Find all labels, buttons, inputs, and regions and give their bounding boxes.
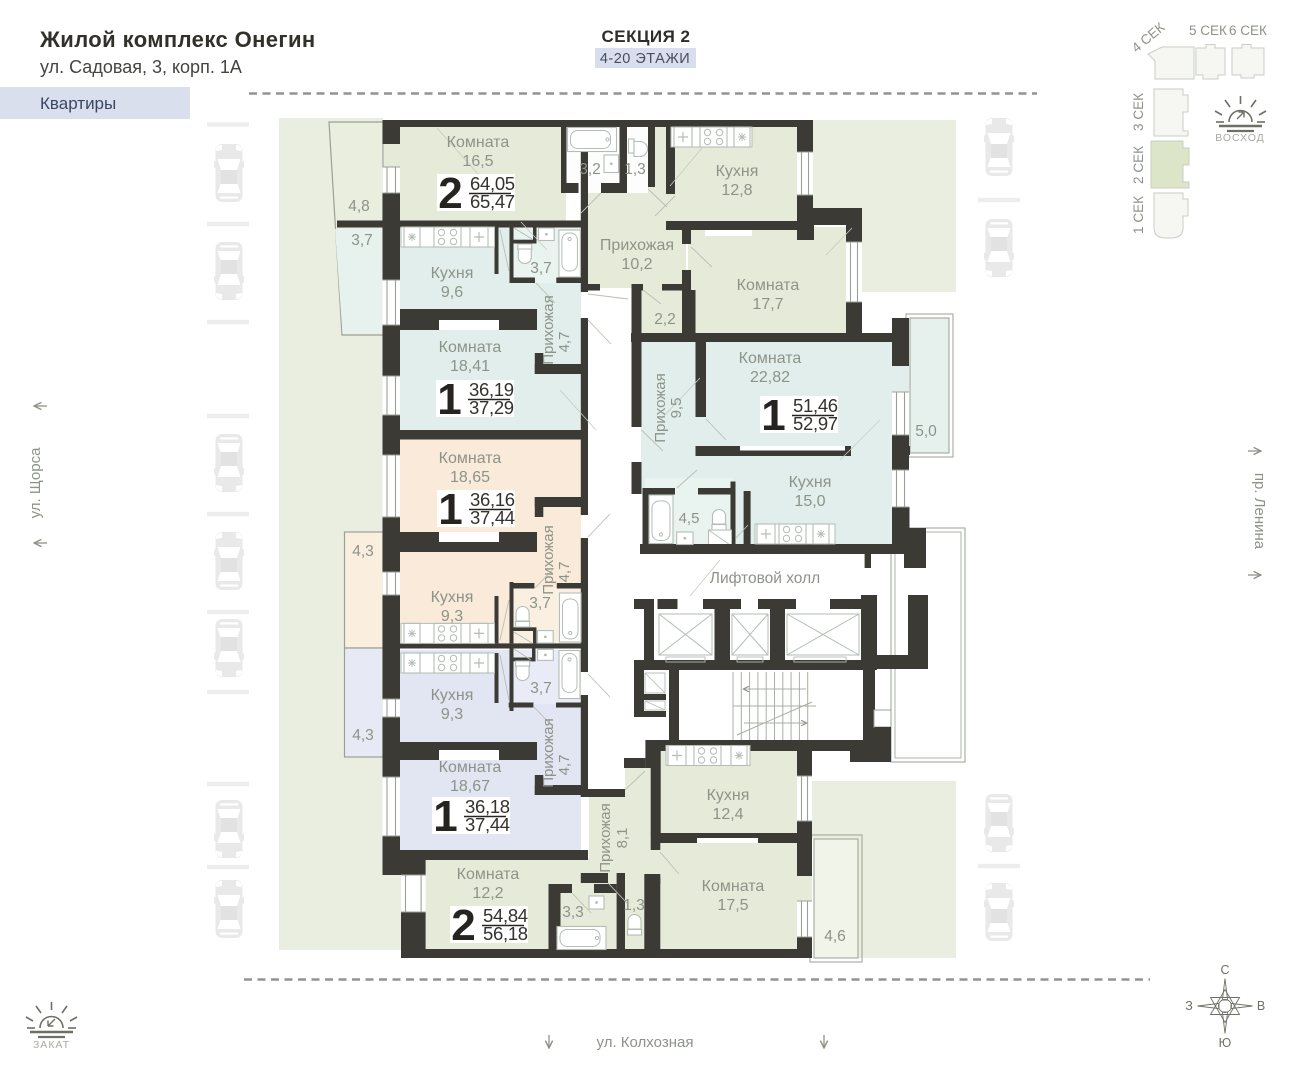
svg-text:9,6: 9,6 (441, 284, 463, 301)
svg-text:16,5: 16,5 (462, 153, 493, 170)
svg-text:Кухня: Кухня (716, 163, 759, 180)
svg-text:5 СЕК: 5 СЕК (1189, 23, 1227, 38)
svg-text:2 СЕК: 2 СЕК (1131, 146, 1146, 184)
svg-text:ул. Садовая, 3, корп. 1А: ул. Садовая, 3, корп. 1А (40, 57, 242, 77)
svg-text:2: 2 (451, 901, 475, 950)
svg-text:9,3: 9,3 (441, 608, 463, 625)
svg-text:Лифтовой холл: Лифтовой холл (710, 570, 820, 587)
svg-text:4,6: 4,6 (824, 928, 846, 945)
svg-text:Прихожая: Прихожая (540, 295, 557, 365)
svg-text:3 СЕК: 3 СЕК (1131, 93, 1146, 131)
svg-text:Прихожая: Прихожая (597, 803, 614, 873)
svg-text:Комната: Комната (739, 350, 802, 367)
svg-text:Прихожая: Прихожая (540, 718, 557, 788)
svg-text:4,5: 4,5 (679, 510, 700, 527)
svg-text:1,3: 1,3 (624, 161, 646, 178)
svg-text:4,7: 4,7 (556, 755, 573, 776)
svg-text:9,5: 9,5 (668, 398, 685, 419)
svg-text:Ю: Ю (1219, 1036, 1232, 1050)
svg-text:4-20 ЭТАЖИ: 4-20 ЭТАЖИ (600, 51, 690, 67)
svg-text:Кухня: Кухня (707, 787, 750, 804)
svg-text:Прихожая: Прихожая (540, 525, 557, 595)
svg-text:1,3: 1,3 (623, 897, 645, 914)
svg-text:6 СЕК: 6 СЕК (1229, 23, 1267, 38)
svg-text:1: 1 (433, 792, 457, 841)
svg-text:5,0: 5,0 (915, 423, 937, 440)
svg-text:З: З (1185, 999, 1193, 1013)
svg-text:Комната: Комната (439, 759, 502, 776)
svg-text:1: 1 (761, 391, 785, 440)
svg-text:18,41: 18,41 (450, 358, 490, 375)
svg-text:4,3: 4,3 (352, 543, 374, 560)
svg-text:3,2: 3,2 (579, 161, 601, 178)
svg-text:8,1: 8,1 (614, 828, 631, 849)
svg-text:17,5: 17,5 (717, 897, 748, 914)
svg-text:Кухня: Кухня (431, 589, 474, 606)
svg-text:15,0: 15,0 (794, 493, 825, 510)
svg-text:Комната: Комната (439, 450, 502, 467)
svg-text:12,4: 12,4 (712, 806, 743, 823)
svg-text:18,65: 18,65 (450, 469, 490, 486)
svg-text:1: 1 (438, 485, 462, 534)
svg-text:4,7: 4,7 (556, 562, 573, 583)
svg-text:3,7: 3,7 (351, 232, 373, 249)
svg-text:Комната: Комната (457, 866, 520, 883)
svg-text:12,8: 12,8 (721, 182, 752, 199)
svg-text:Квартиры: Квартиры (40, 94, 116, 113)
svg-text:В: В (1257, 999, 1265, 1013)
svg-text:ЗАКАТ: ЗАКАТ (33, 1039, 70, 1051)
svg-text:10,2: 10,2 (621, 256, 652, 273)
svg-text:Прихожая: Прихожая (600, 237, 674, 254)
svg-text:1 СЕК: 1 СЕК (1131, 196, 1146, 234)
svg-text:2: 2 (438, 169, 462, 218)
svg-text:пр. Ленина: пр. Ленина (1251, 473, 1268, 550)
svg-text:Комната: Комната (439, 339, 502, 356)
svg-text:22,82: 22,82 (750, 369, 790, 386)
svg-text:17,7: 17,7 (752, 296, 783, 313)
svg-text:Кухня: Кухня (431, 687, 474, 704)
svg-text:ул. Колхозная: ул. Колхозная (597, 1034, 694, 1051)
svg-text:9,3: 9,3 (441, 706, 463, 723)
svg-text:12,2: 12,2 (472, 885, 503, 902)
svg-text:Жилой комплекс Онегин: Жилой комплекс Онегин (39, 27, 316, 52)
svg-text:Комната: Комната (447, 134, 510, 151)
svg-text:3,7: 3,7 (530, 260, 552, 277)
svg-text:3,7: 3,7 (530, 680, 552, 697)
svg-text:4,8: 4,8 (348, 198, 370, 215)
svg-text:ул. Щорса: ул. Щорса (27, 447, 44, 519)
svg-text:2,2: 2,2 (654, 311, 676, 328)
svg-text:4,3: 4,3 (352, 727, 374, 744)
svg-text:Кухня: Кухня (431, 265, 474, 282)
svg-text:1: 1 (437, 375, 461, 424)
svg-text:СЕКЦИЯ 2: СЕКЦИЯ 2 (601, 27, 690, 46)
svg-text:Прихожая: Прихожая (652, 373, 669, 443)
svg-text:4,7: 4,7 (556, 332, 573, 353)
svg-text:Кухня: Кухня (789, 474, 832, 491)
svg-text:Комната: Комната (702, 878, 765, 895)
svg-text:Комната: Комната (737, 277, 800, 294)
svg-text:С: С (1220, 963, 1229, 977)
svg-text:3,7: 3,7 (529, 595, 551, 612)
svg-text:3,3: 3,3 (562, 904, 584, 921)
svg-text:ВОСХОД: ВОСХОД (1215, 132, 1265, 144)
